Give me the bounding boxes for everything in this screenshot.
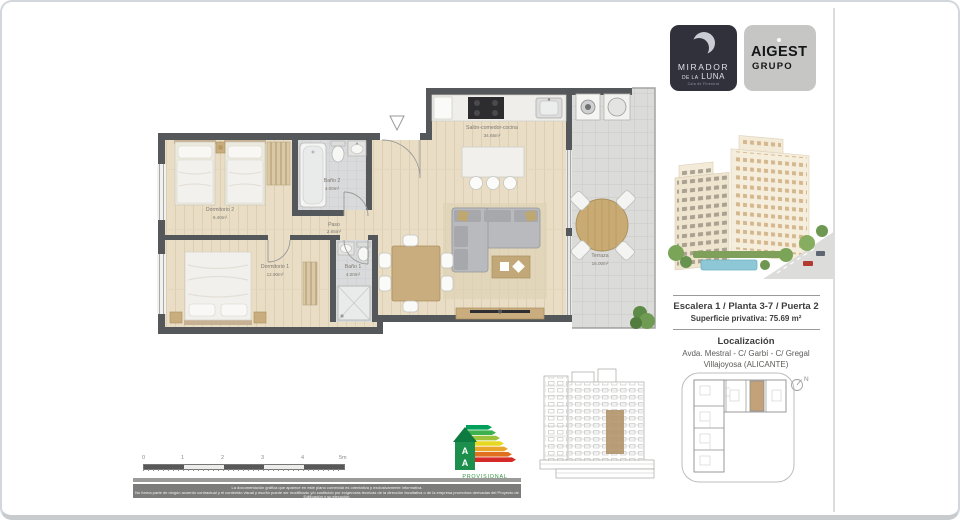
highlighted-unit — [750, 381, 764, 411]
site-plan: N — [680, 370, 812, 486]
svg-text:16.00m²: 16.00m² — [592, 261, 609, 266]
wardrobe — [267, 142, 290, 185]
entrance-arrow-icon — [390, 116, 404, 130]
svg-text:Salón-comedor-cocina: Salón-comedor-cocina — [466, 125, 518, 131]
svg-text:Dormitorio 2: Dormitorio 2 — [206, 207, 234, 213]
wardrobe — [303, 262, 317, 305]
svg-text:Baño 2: Baño 2 — [324, 178, 341, 184]
svg-text:Baño 1: Baño 1 — [345, 264, 362, 270]
svg-text:Dormitorio 1: Dormitorio 1 — [261, 264, 289, 270]
unit-title: Escalera 1 / Planta 3-7 / Puerta 2 — [658, 301, 834, 312]
svg-text:Paso: Paso — [328, 222, 340, 228]
aigest-name: AIGEST — [751, 44, 807, 60]
disclaimer-divider — [133, 478, 521, 482]
scale-bar: 0 1 2 3 4 5m — [143, 455, 349, 473]
disclaimer-bar: La documentación gráfica que aparece en … — [133, 484, 521, 498]
svg-text:34.65m²: 34.65m² — [484, 133, 501, 138]
mirador-name: MIRADOR — [670, 62, 737, 72]
moon-icon — [691, 30, 717, 56]
aigest-sub: GRUPO — [752, 61, 793, 72]
disclaimer-line2: No forma parte de ningún acuerdo contrac… — [133, 491, 521, 500]
aigest-dot-icon — [777, 38, 781, 42]
highlighted-floors — [606, 410, 624, 454]
svg-text:Terraza: Terraza — [591, 253, 608, 259]
location-heading: Localización — [658, 336, 834, 347]
location-address: Avda. Mestral - C/ Garbí - C/ Gregal — [658, 349, 834, 358]
svg-text:A: A — [462, 446, 469, 456]
aigest-logo: AIGEST GRUPO — [744, 25, 816, 91]
svg-text:A: A — [462, 458, 469, 468]
scale-bar-ticks — [143, 469, 343, 471]
svg-text:9.40m²: 9.40m² — [213, 215, 228, 220]
building-elevation — [538, 366, 656, 482]
svg-text:2.65m²: 2.65m² — [327, 229, 342, 234]
svg-text:N: N — [804, 376, 809, 383]
mirador-tagline: Cala de Finestrat — [670, 82, 737, 86]
page-edge-rule — [833, 8, 835, 512]
mirador-name2: DE LA LUNA — [670, 72, 737, 81]
svg-text:4.00m²: 4.00m² — [325, 186, 340, 191]
brochure-page: Dormitorio 2 9.40m² Baño 2 4.00m² Paso 2… — [0, 0, 960, 520]
building-render — [665, 103, 835, 279]
unit-surface: Superficie privativa: 75.69 m² — [658, 314, 834, 323]
divider-rule — [673, 295, 820, 296]
svg-text:4.00m²: 4.00m² — [346, 272, 361, 277]
floor-plan: Dormitorio 2 9.40m² Baño 2 4.00m² Paso 2… — [140, 80, 665, 350]
svg-text:12.90m²: 12.90m² — [267, 272, 284, 277]
energy-rating-icon: A A PROVISIONAL — [452, 422, 524, 480]
mirador-logo: MIRADOR DE LA LUNA Cala de Finestrat — [670, 25, 737, 91]
location-city: Villajoyosa (ALICANTE) — [658, 360, 834, 369]
divider-rule — [673, 329, 820, 330]
